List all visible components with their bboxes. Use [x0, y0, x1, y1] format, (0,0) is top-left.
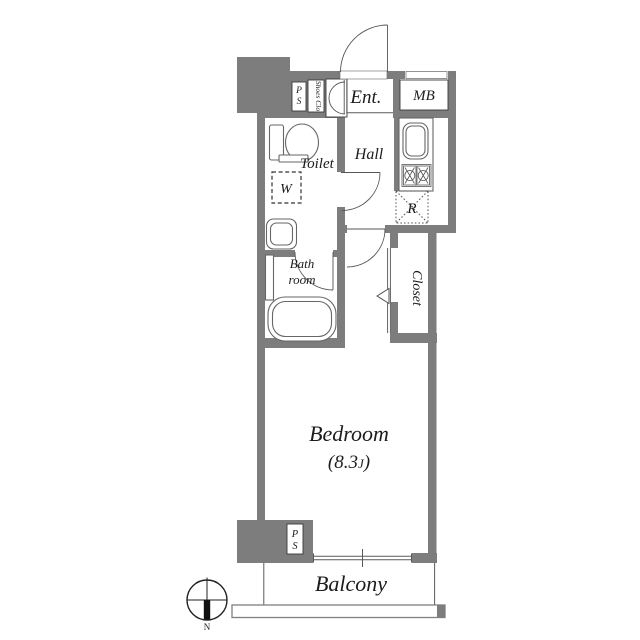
balcony-railing-cap	[437, 605, 445, 618]
wall-hall-bottom-left	[337, 225, 347, 233]
wall-right-upper	[448, 71, 456, 233]
wall-bedroom-bottom-right	[412, 553, 437, 563]
entrance-opening	[340, 71, 387, 79]
bedroom-label: Bedroom	[309, 421, 389, 446]
wall-bath-right	[337, 250, 345, 348]
ps-top-label-line1: P	[295, 86, 302, 96]
ps-bottom-label-line2: S	[292, 541, 298, 552]
wall-closet-bottom	[390, 333, 437, 343]
compass-north-label: N	[204, 622, 211, 632]
hall-label: Hall	[354, 146, 384, 163]
wall-under-mb	[393, 110, 456, 118]
kitchen-sink-bowl	[406, 126, 425, 156]
wall-top-b	[387, 71, 405, 79]
wall-closet-left-upper	[390, 233, 398, 248]
wall-toilet-right	[337, 118, 345, 172]
washroom-door-arc	[342, 173, 380, 211]
bathtub-inner	[273, 302, 332, 337]
wall-left	[257, 110, 265, 563]
bedroom-door-arc	[347, 229, 385, 267]
compass: N	[187, 578, 227, 633]
wall-hall-kitchen	[394, 117, 399, 191]
balcony-railing	[232, 605, 445, 618]
wall-top-left-block	[237, 57, 290, 113]
wall-top-a	[290, 71, 340, 79]
meter-box-label: MB	[412, 88, 435, 104]
ps-top-label-line2: S	[297, 97, 302, 107]
meter-box-door	[406, 72, 447, 79]
floorplan-drawing: N P S Shoes Clo Ent. MB Toilet W Hall R …	[0, 0, 640, 640]
closet-label: Closet	[409, 270, 424, 307]
closet-door-swing-arrow	[377, 289, 389, 304]
entrance-label: Ent.	[349, 87, 381, 108]
bathroom-label-line2: room	[289, 272, 316, 287]
wall-closet-right	[428, 233, 437, 343]
compass-needle-icon	[204, 600, 210, 620]
washbasin-bowl	[271, 223, 293, 245]
balcony-label: Balcony	[315, 571, 387, 596]
wall-mb-left	[393, 79, 400, 110]
bath-counter	[266, 255, 274, 300]
bedroom-area-label: (8.3J)	[328, 452, 370, 473]
toilet-label: Toilet	[300, 156, 334, 172]
kitchen-stove	[402, 165, 431, 187]
washer-space-label: W	[280, 182, 293, 197]
refrigerator-label: R	[406, 201, 416, 217]
wall-under-kitchen	[390, 225, 456, 233]
ps-bottom-label-line1: P	[291, 529, 299, 540]
wall-bedroom-right	[428, 343, 437, 563]
bathroom-label-line1: Bath	[290, 256, 315, 271]
shoes-closet-label: Shoes Clo	[314, 81, 323, 111]
floorplan: N P S Shoes Clo Ent. MB Toilet W Hall R …	[0, 0, 640, 640]
entrance-door-arc	[341, 25, 388, 72]
